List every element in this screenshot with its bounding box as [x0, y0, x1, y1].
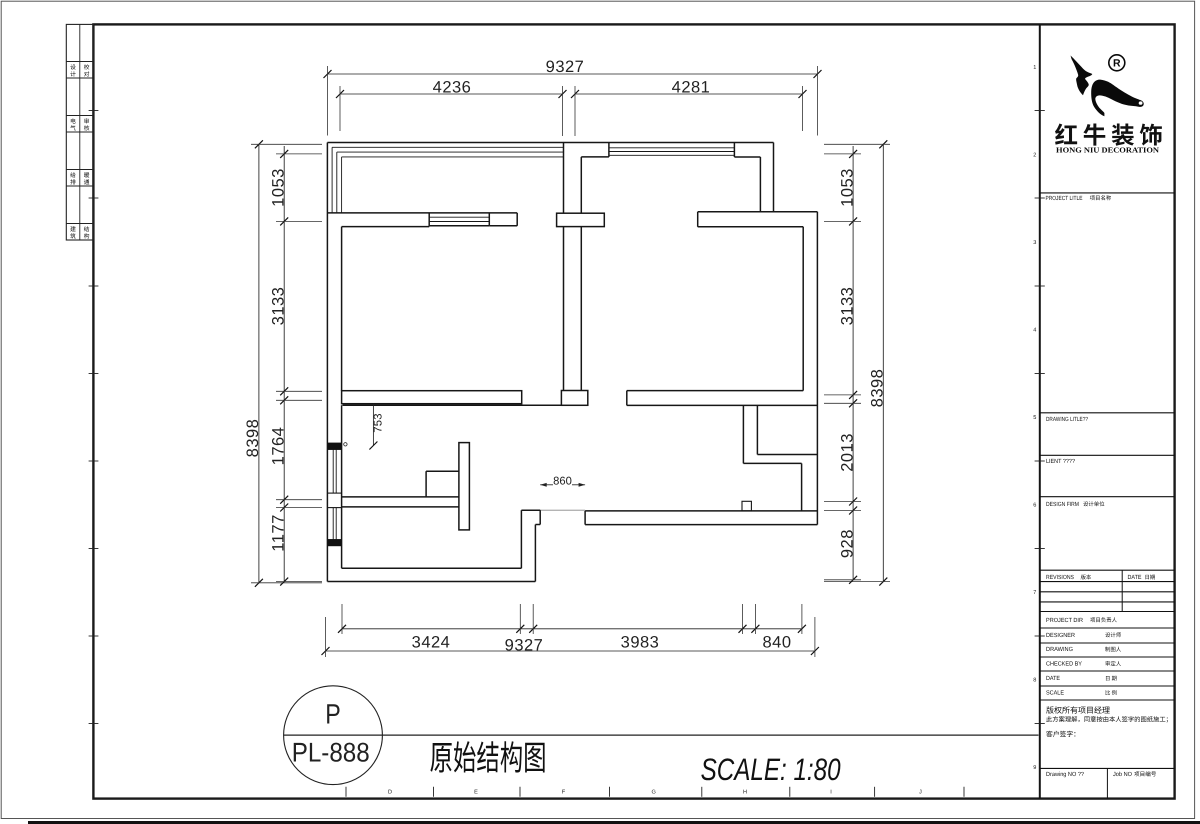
svg-text:PROJECT DIR: PROJECT DIR — [1046, 617, 1084, 624]
svg-text:2013: 2013 — [839, 433, 857, 472]
svg-text:D: D — [388, 790, 392, 796]
svg-text:PL-888: PL-888 — [292, 737, 370, 767]
svg-text:P: P — [325, 699, 341, 730]
svg-text:3983: 3983 — [621, 634, 660, 652]
svg-text:DESIGNER: DESIGNER — [1046, 632, 1076, 639]
svg-text:1: 1 — [1033, 65, 1036, 71]
svg-text:E: E — [474, 790, 478, 796]
svg-text:DATE: DATE — [1128, 574, 1142, 581]
svg-text:5: 5 — [1033, 415, 1036, 421]
svg-text:SCALE: SCALE — [1046, 690, 1064, 697]
svg-text:8398: 8398 — [869, 369, 887, 408]
svg-text:G: G — [652, 790, 656, 796]
svg-text:LIENT ????: LIENT ???? — [1046, 458, 1076, 465]
svg-text:3133: 3133 — [270, 287, 288, 326]
svg-text:HONG NIU DECORATION: HONG NIU DECORATION — [1056, 146, 1160, 155]
svg-text:J: J — [919, 790, 922, 796]
svg-text:F: F — [562, 790, 566, 796]
svg-text:1177: 1177 — [270, 514, 288, 551]
svg-text:DATE: DATE — [1046, 675, 1060, 682]
svg-text:Drawing NO ??: Drawing NO ?? — [1046, 771, 1085, 778]
svg-text:3133: 3133 — [839, 287, 857, 326]
svg-text:DESIGN FIRM: DESIGN FIRM — [1046, 501, 1079, 508]
svg-text:4236: 4236 — [433, 78, 472, 96]
svg-text:3: 3 — [1033, 240, 1036, 246]
svg-text:7: 7 — [1033, 590, 1036, 596]
svg-text:DRAWING: DRAWING — [1046, 646, 1073, 653]
svg-text:8398: 8398 — [244, 419, 262, 458]
svg-text:R: R — [1113, 58, 1121, 70]
svg-text:3424: 3424 — [412, 634, 451, 652]
svg-text:6: 6 — [1033, 503, 1036, 509]
svg-text:1053: 1053 — [839, 168, 857, 207]
svg-text:8: 8 — [1033, 678, 1036, 684]
svg-text:SCALE: 1:80: SCALE: 1:80 — [701, 752, 841, 787]
svg-text:860: 860 — [553, 475, 572, 487]
svg-text:4: 4 — [1033, 328, 1036, 334]
svg-text:9327: 9327 — [505, 637, 544, 655]
svg-text:CHECKED BY: CHECKED BY — [1046, 661, 1082, 668]
svg-text:DRAWING LITLE??: DRAWING LITLE?? — [1046, 416, 1089, 423]
svg-text:4281: 4281 — [672, 78, 711, 96]
svg-text:PROJECT LITLE: PROJECT LITLE — [1046, 195, 1083, 202]
svg-text:H: H — [743, 790, 747, 796]
svg-text:1764: 1764 — [270, 427, 288, 466]
svg-text:9327: 9327 — [546, 58, 585, 76]
svg-text:Job NO: Job NO — [1113, 771, 1132, 778]
svg-text:2: 2 — [1033, 153, 1036, 159]
svg-text:9: 9 — [1033, 765, 1036, 771]
svg-text:1053: 1053 — [270, 168, 288, 207]
svg-text:753: 753 — [372, 413, 384, 432]
svg-text:REVISIONS: REVISIONS — [1046, 574, 1074, 581]
svg-text:928: 928 — [839, 529, 857, 558]
svg-text:840: 840 — [762, 634, 791, 652]
